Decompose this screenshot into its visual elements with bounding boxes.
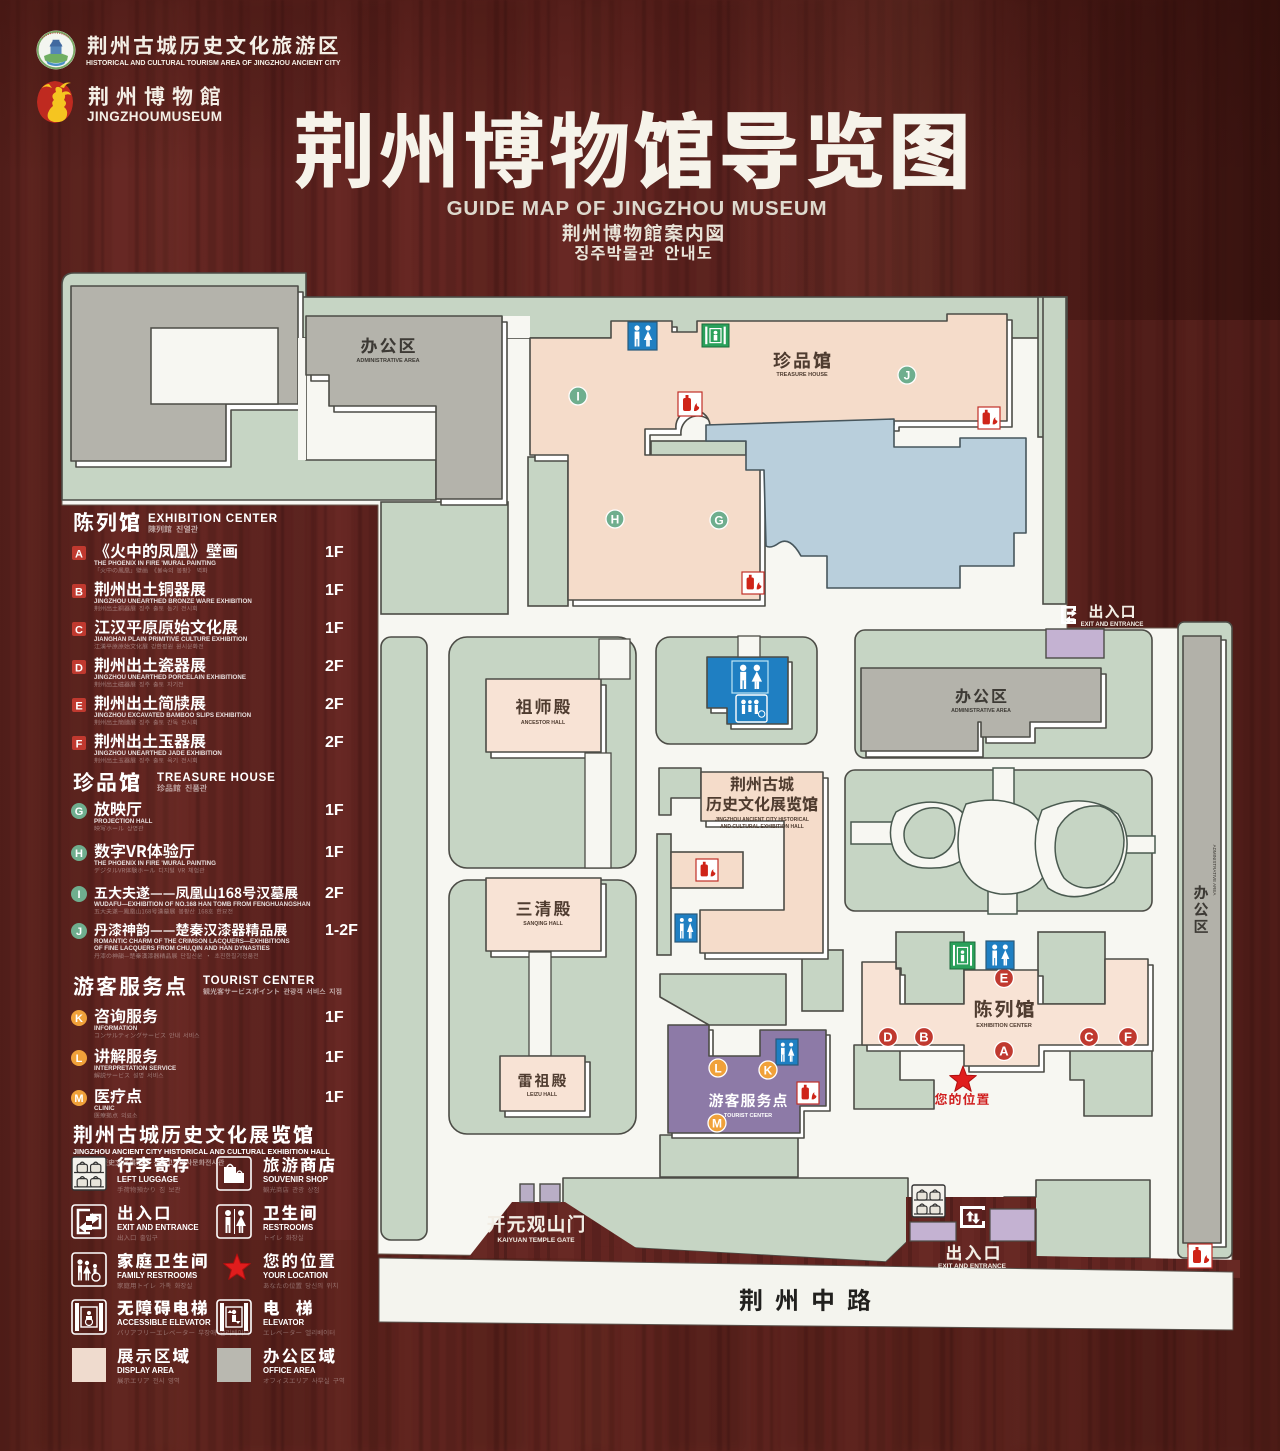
svg-text:WUDAFU—EXHIBITION OF NO.168 HA: WUDAFU—EXHIBITION OF NO.168 HAN TOMB FRO… [94, 901, 311, 908]
svg-text:2F: 2F [325, 696, 344, 713]
svg-text:1-2F: 1-2F [325, 922, 358, 939]
svg-text:JIANGHAN PLAIN PRIMITIVE CULTU: JIANGHAN PLAIN PRIMITIVE CULTURE EXHIBIT… [94, 636, 248, 643]
svg-text:ANCESTOR HALL: ANCESTOR HALL [521, 720, 566, 726]
svg-text:E: E [75, 701, 82, 713]
svg-text:L: L [714, 1061, 721, 1075]
svg-text:A: A [999, 1044, 1009, 1059]
svg-text:JINGZHOUMUSEUM: JINGZHOUMUSEUM [87, 109, 222, 124]
svg-text:JINGZHOU ANCIENT CITY HISTORIC: JINGZHOU ANCIENT CITY HISTORICAL AND CUL… [73, 1147, 330, 1156]
svg-text:L: L [76, 1053, 83, 1065]
svg-text:AND CULTURAL EXHIBITION HALL: AND CULTURAL EXHIBITION HALL [720, 824, 804, 830]
svg-text:ADMINISTRATIVE AREA: ADMINISTRATIVE AREA [951, 708, 1011, 714]
svg-text:E: E [1000, 971, 1009, 986]
svg-text:M: M [712, 1116, 722, 1130]
svg-text:EXIT AND ENTRANCE: EXIT AND ENTRANCE [938, 1263, 1007, 1270]
svg-text:FAMILY RESTROOMS: FAMILY RESTROOMS [117, 1271, 197, 1280]
svg-text:M: M [74, 1093, 83, 1105]
svg-text:LEIZU HALL: LEIZU HALL [527, 1092, 558, 1098]
svg-text:J: J [76, 926, 82, 938]
svg-text:TOURIST CENTER: TOURIST CENTER [724, 1113, 772, 1119]
svg-text:EXHIBITION CENTER: EXHIBITION CENTER [976, 1023, 1032, 1029]
svg-text:I: I [576, 389, 579, 403]
svg-text:I: I [77, 889, 80, 901]
svg-text:ADMINISTRATIVE AREA: ADMINISTRATIVE AREA [1212, 845, 1217, 896]
svg-text:THE PHOENIX IN FIRE 'MURAL PAI: THE PHOENIX IN FIRE 'MURAL PAINTING [94, 860, 216, 867]
svg-text:D: D [75, 663, 83, 675]
svg-text:2F: 2F [325, 885, 344, 902]
svg-text:OF FINE LACQUERS FROM CHU,QIN: OF FINE LACQUERS FROM CHU,QIN AND HAN DY… [94, 945, 270, 952]
svg-text:INTERPRETATION SERVICE: INTERPRETATION SERVICE [94, 1065, 176, 1072]
svg-text:C: C [1084, 1030, 1094, 1045]
svg-text:K: K [75, 1013, 83, 1025]
svg-text:1F: 1F [325, 844, 344, 861]
svg-text:1F: 1F [325, 544, 344, 561]
svg-text:D: D [883, 1030, 892, 1045]
svg-text:K: K [764, 1063, 773, 1077]
svg-text:JINGZHOU ANCIENT CITY HISTORIC: JINGZHOU ANCIENT CITY HISTORICAL [715, 817, 809, 823]
svg-text:LEFT LUGGAGE: LEFT LUGGAGE [117, 1175, 178, 1184]
svg-text:TREASURE HOUSE: TREASURE HOUSE [776, 372, 828, 378]
svg-text:THE PHOENIX IN FIRE 'MURAL PAI: THE PHOENIX IN FIRE 'MURAL PAINTING [94, 560, 216, 567]
svg-text:F: F [76, 739, 83, 751]
svg-text:JINGZHOU UNEARTHED PORCELAIN E: JINGZHOU UNEARTHED PORCELAIN EXHIBITIONE [94, 674, 246, 681]
svg-text:INFORMATION: INFORMATION [94, 1025, 138, 1032]
svg-text:A: A [75, 549, 83, 561]
svg-text:KAIYUAN TEMPLE GATE: KAIYUAN TEMPLE GATE [497, 1237, 575, 1244]
svg-text:C: C [75, 625, 83, 637]
svg-text:1F: 1F [325, 1009, 344, 1026]
svg-text:GUIDE MAP OF JINGZHOU MUSEUM: GUIDE MAP OF JINGZHOU MUSEUM [447, 197, 828, 220]
svg-text:CLINIC: CLINIC [94, 1105, 115, 1112]
svg-text:JINGZHOU UNEARTHED BRONZE WARE: JINGZHOU UNEARTHED BRONZE WARE EXHIBITIO… [94, 598, 252, 605]
svg-text:G: G [75, 806, 84, 818]
svg-text:2F: 2F [325, 658, 344, 675]
svg-text:OFFICE AREA: OFFICE AREA [263, 1366, 316, 1375]
svg-text:B: B [919, 1030, 928, 1045]
svg-text:SOUVENIR SHOP: SOUVENIR SHOP [263, 1175, 328, 1184]
svg-text:B: B [75, 587, 83, 599]
svg-text:ACCESSIBLE ELEVATOR: ACCESSIBLE ELEVATOR [117, 1318, 211, 1327]
svg-text:H: H [75, 848, 83, 860]
svg-text:2F: 2F [325, 734, 344, 751]
svg-text:ELEVATOR: ELEVATOR [263, 1318, 305, 1327]
svg-text:1F: 1F [325, 1049, 344, 1066]
svg-text:TOURIST CENTER: TOURIST CENTER [203, 975, 315, 987]
svg-text:DISPLAY AREA: DISPLAY AREA [117, 1366, 174, 1375]
svg-text:TREASURE HOUSE: TREASURE HOUSE [157, 772, 276, 784]
svg-text:EXIT AND ENTRANCE: EXIT AND ENTRANCE [1081, 622, 1144, 628]
svg-text:1F: 1F [325, 620, 344, 637]
svg-text:ROMANTIC CHARM OF THE CRIMSON: ROMANTIC CHARM OF THE CRIMSON LACQUERS—E… [94, 938, 290, 945]
svg-text:G: G [714, 513, 723, 527]
svg-text:1F: 1F [325, 582, 344, 599]
svg-text:1F: 1F [325, 802, 344, 819]
svg-text:JINGZHOU EXCAVATED BAMBOO SLIP: JINGZHOU EXCAVATED BAMBOO SLIPS EXHIBITI… [94, 712, 252, 719]
svg-text:EXIT AND ENTRANCE: EXIT AND ENTRANCE [117, 1223, 199, 1232]
svg-text:ADMINISTRATIVE AREA: ADMINISTRATIVE AREA [356, 358, 419, 364]
svg-text:J: J [904, 368, 911, 382]
svg-text:SANQING HALL: SANQING HALL [523, 921, 563, 927]
svg-text:F: F [1124, 1030, 1132, 1045]
svg-text:PROJECTION HALL: PROJECTION HALL [94, 818, 153, 825]
svg-text:HISTORICAL AND CULTURAL TOURIS: HISTORICAL AND CULTURAL TOURISM AREA OF … [86, 60, 341, 67]
svg-text:RESTROOMS: RESTROOMS [263, 1223, 313, 1232]
svg-text:1F: 1F [325, 1089, 344, 1106]
svg-text:H: H [611, 512, 620, 526]
svg-text:YOUR LOCATION: YOUR LOCATION [263, 1271, 328, 1280]
svg-text:JINGZHOU UNEARTHED JADE EXHIBI: JINGZHOU UNEARTHED JADE EXHIBITION [94, 750, 222, 757]
svg-text:EXHIBITION CENTER: EXHIBITION CENTER [148, 513, 278, 525]
